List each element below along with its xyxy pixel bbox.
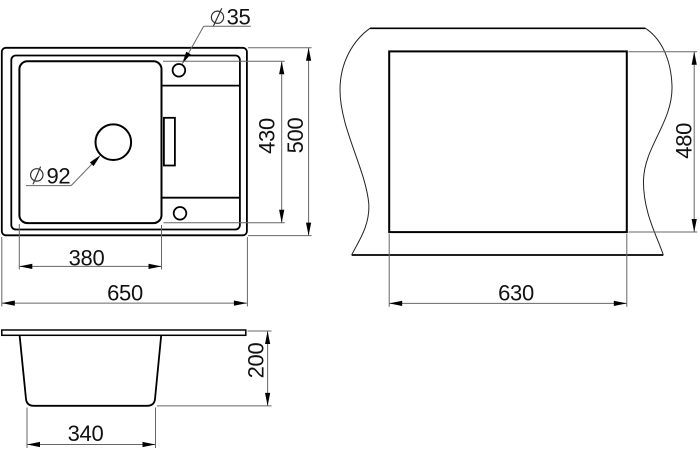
svg-text:35: 35 [227,4,251,29]
svg-text:380: 380 [69,245,105,270]
svg-text:500: 500 [283,118,308,154]
svg-text:630: 630 [498,280,534,305]
svg-text:480: 480 [672,123,697,159]
svg-text:200: 200 [244,343,269,379]
svg-text:430: 430 [255,118,280,154]
svg-text:92: 92 [47,164,71,189]
svg-text:340: 340 [68,421,104,446]
svg-text:650: 650 [107,281,143,306]
